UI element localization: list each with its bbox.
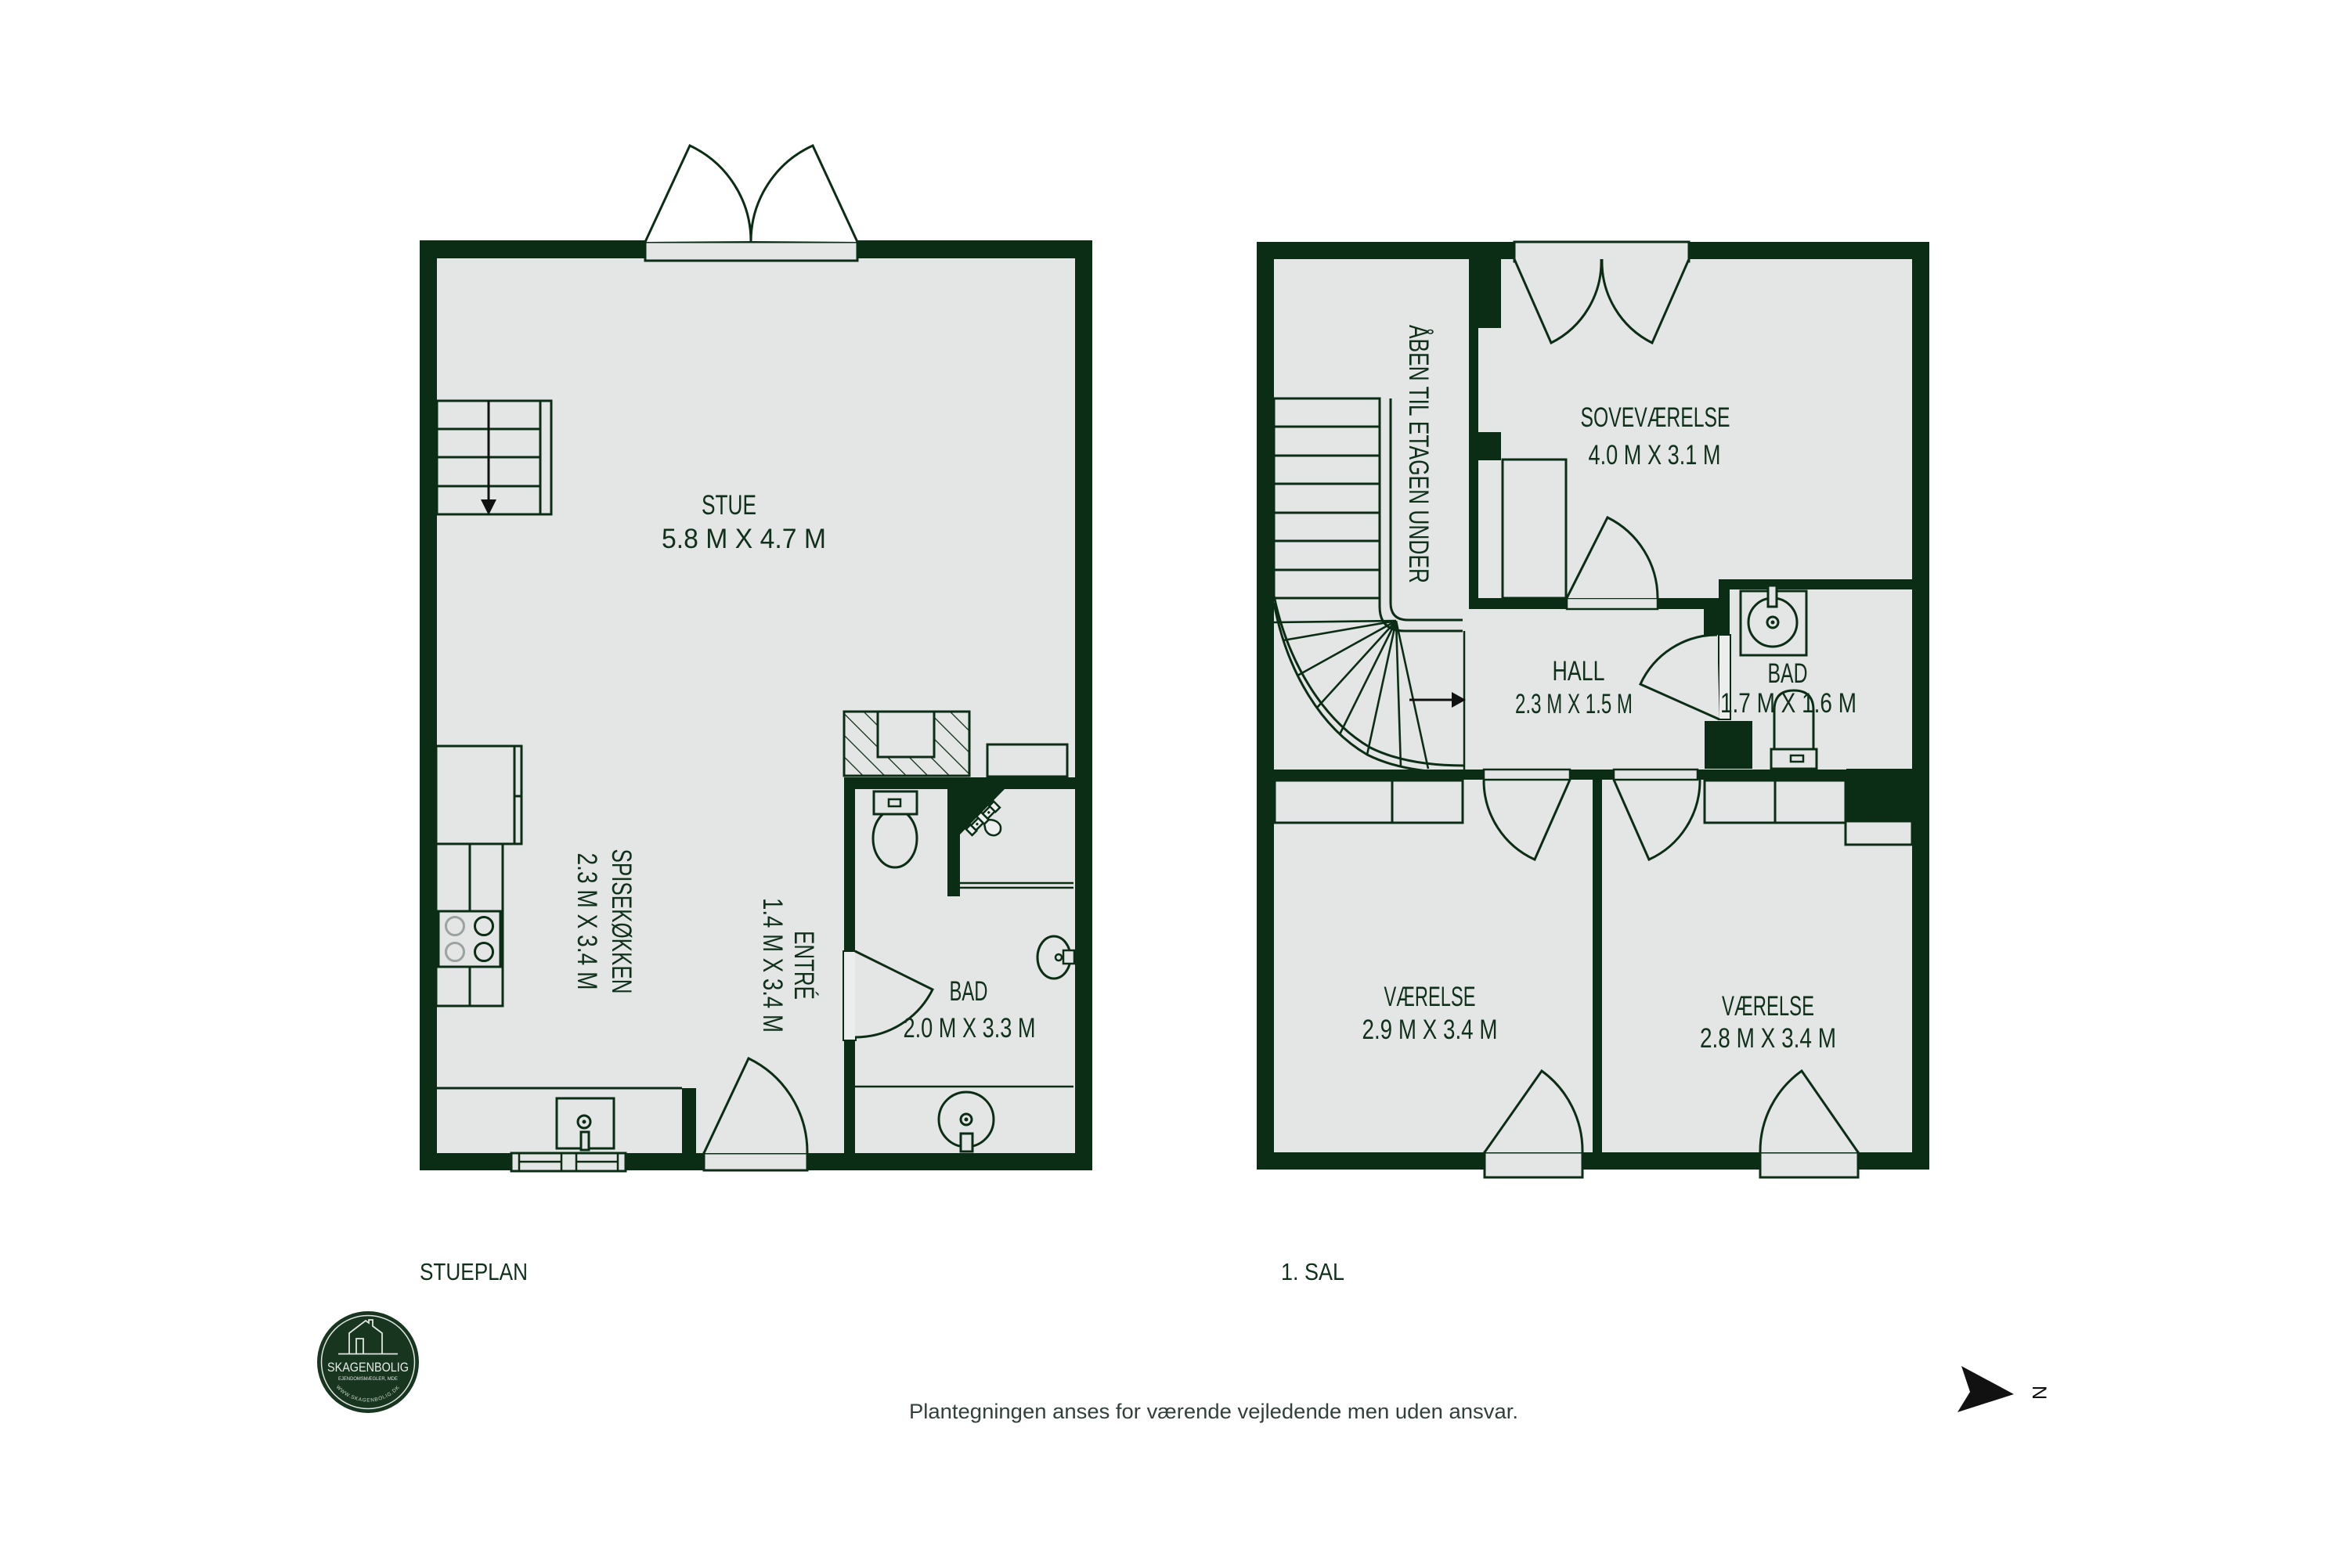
svg-text:BAD: BAD (950, 976, 988, 1007)
svg-text:Plantegningen anses for værend: Plantegningen anses for værende vejleden… (909, 1400, 1518, 1423)
svg-text:2.8 M X 3.4 M: 2.8 M X 3.4 M (1700, 1023, 1836, 1054)
svg-text:2.0 M X 3.3 M: 2.0 M X 3.3 M (904, 1013, 1036, 1044)
svg-text:2.3 M X 1.5 M: 2.3 M X 1.5 M (1515, 689, 1633, 719)
svg-text:SOVEVÆRELSE: SOVEVÆRELSE (1581, 402, 1730, 433)
svg-text:VÆRELSE: VÆRELSE (1722, 991, 1814, 1022)
svg-text:1.7 M X 1.6 M: 1.7 M X 1.6 M (1720, 688, 1856, 719)
svg-text:5.8 M X 4.7 M: 5.8 M X 4.7 M (662, 524, 826, 554)
svg-text:HALL: HALL (1553, 656, 1605, 687)
svg-text:1.4 M X 3.4 M: 1.4 M X 3.4 M (757, 898, 788, 1033)
svg-text:EJENDOMSMÆGLER, MDE: EJENDOMSMÆGLER, MDE (338, 1376, 399, 1382)
svg-text:BAD: BAD (1768, 658, 1808, 689)
svg-text:4.0 M X 3.1 M: 4.0 M X 3.1 M (1589, 440, 1721, 470)
svg-text:2.9 M X 3.4 M: 2.9 M X 3.4 M (1362, 1015, 1498, 1045)
svg-text:VÆRELSE: VÆRELSE (1384, 982, 1476, 1012)
svg-text:SKAGENBOLIG: SKAGENBOLIG (327, 1360, 409, 1375)
svg-text:2.3 M X 3.4 M: 2.3 M X 3.4 M (572, 853, 602, 990)
svg-text:STUEPLAN: STUEPLAN (420, 1258, 528, 1285)
svg-text:ENTRÉ: ENTRÉ (788, 931, 819, 1000)
svg-text:SPISEKØKKEN: SPISEKØKKEN (606, 849, 637, 994)
svg-text:STUE: STUE (702, 490, 756, 521)
svg-text:1. SAL: 1. SAL (1281, 1258, 1344, 1285)
svg-text:N: N (2028, 1386, 2050, 1400)
svg-text:ÅBEN TIL ETAGEN UNDER: ÅBEN TIL ETAGEN UNDER (1403, 325, 1434, 583)
